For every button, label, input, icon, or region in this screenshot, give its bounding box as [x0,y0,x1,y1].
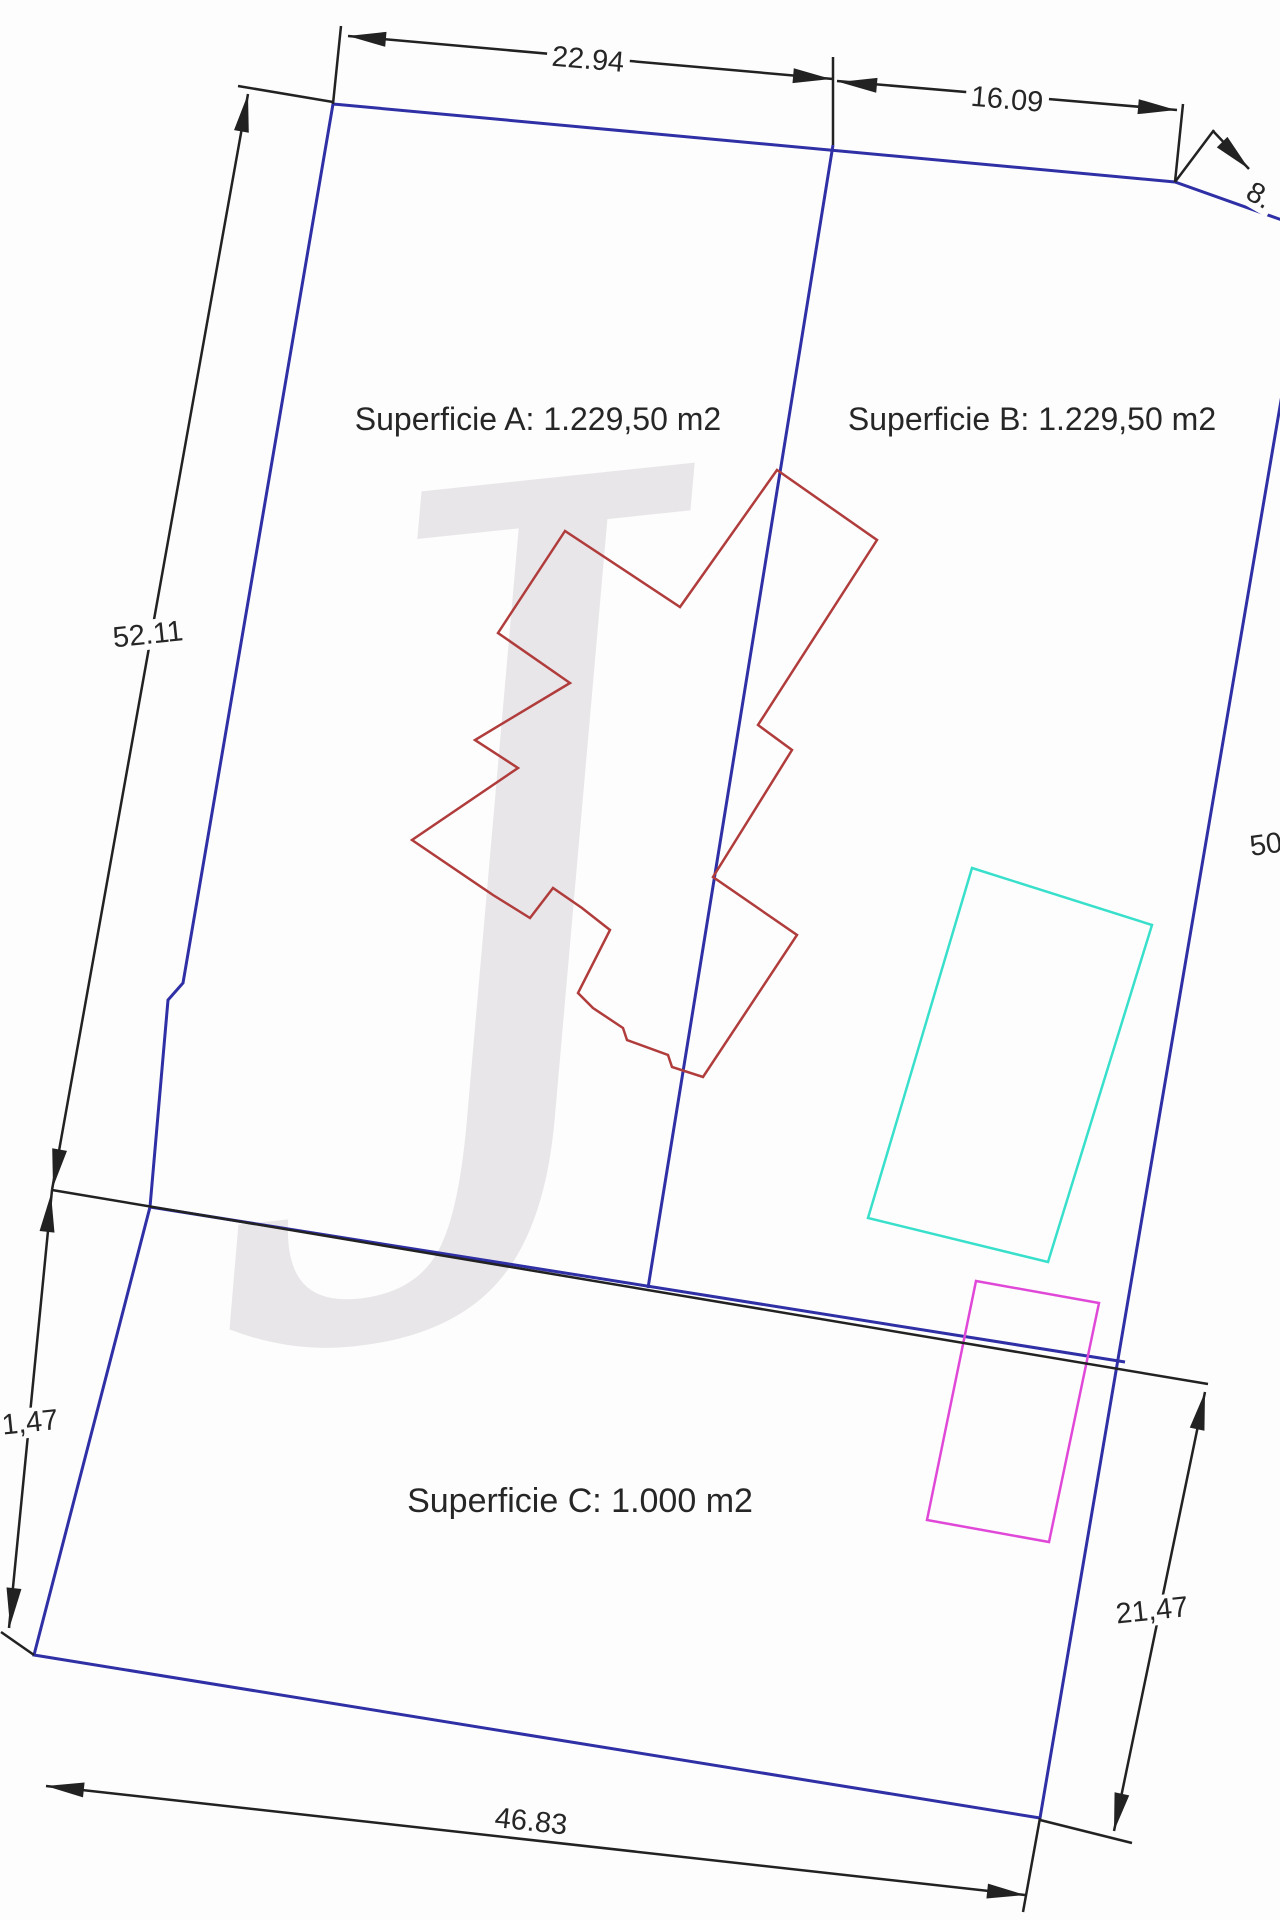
arrowhead [1107,1792,1130,1832]
area-label-a: Superficie A: 1.229,50 m2 [355,403,721,437]
arrowhead [40,1193,59,1232]
ext-line-bottom-right-v [1023,1818,1040,1912]
dimension-label-50: 50 [1243,827,1280,863]
ext-line-top-right [1175,104,1183,182]
dimension-label-16-09: 16.09 [965,81,1050,119]
arrowhead [234,93,255,133]
arrowhead [3,1587,22,1626]
area-label-c: Superficie C: 1.000 m2 [407,1484,753,1520]
ext-line-bottom-left [1,1632,34,1655]
arrowhead [1190,1390,1213,1430]
cyan-structure [868,868,1152,1262]
arrowhead [986,1884,1025,1903]
arrowhead [1217,137,1254,174]
divider-a-b [648,145,833,1288]
dimension-label-1-47: 1,47 [0,1404,65,1441]
ext-line-peak-8 [1175,130,1214,182]
plan-svg [0,0,1280,1920]
dimension-label-22-94: 22.94 [546,41,631,79]
building-outline [412,470,877,1077]
parcel-boundary [34,104,1280,1818]
arrowhead [838,75,877,93]
ext-line-middle-long [52,1190,1208,1384]
site-plan-page: J Superficie A: 1.229,50 m2 Superficie B… [0,0,1280,1920]
arrowhead [45,1779,84,1798]
area-label-b: Superficie B: 1.229,50 m2 [848,403,1216,437]
arrowhead [46,1148,67,1188]
ext-line-top-left-v [333,26,341,104]
dim-line-46-83 [46,1786,1025,1895]
ext-line-bottom-right-h [1040,1820,1132,1843]
magenta-structure [927,1281,1099,1542]
ext-line-top-left-h [238,86,333,102]
